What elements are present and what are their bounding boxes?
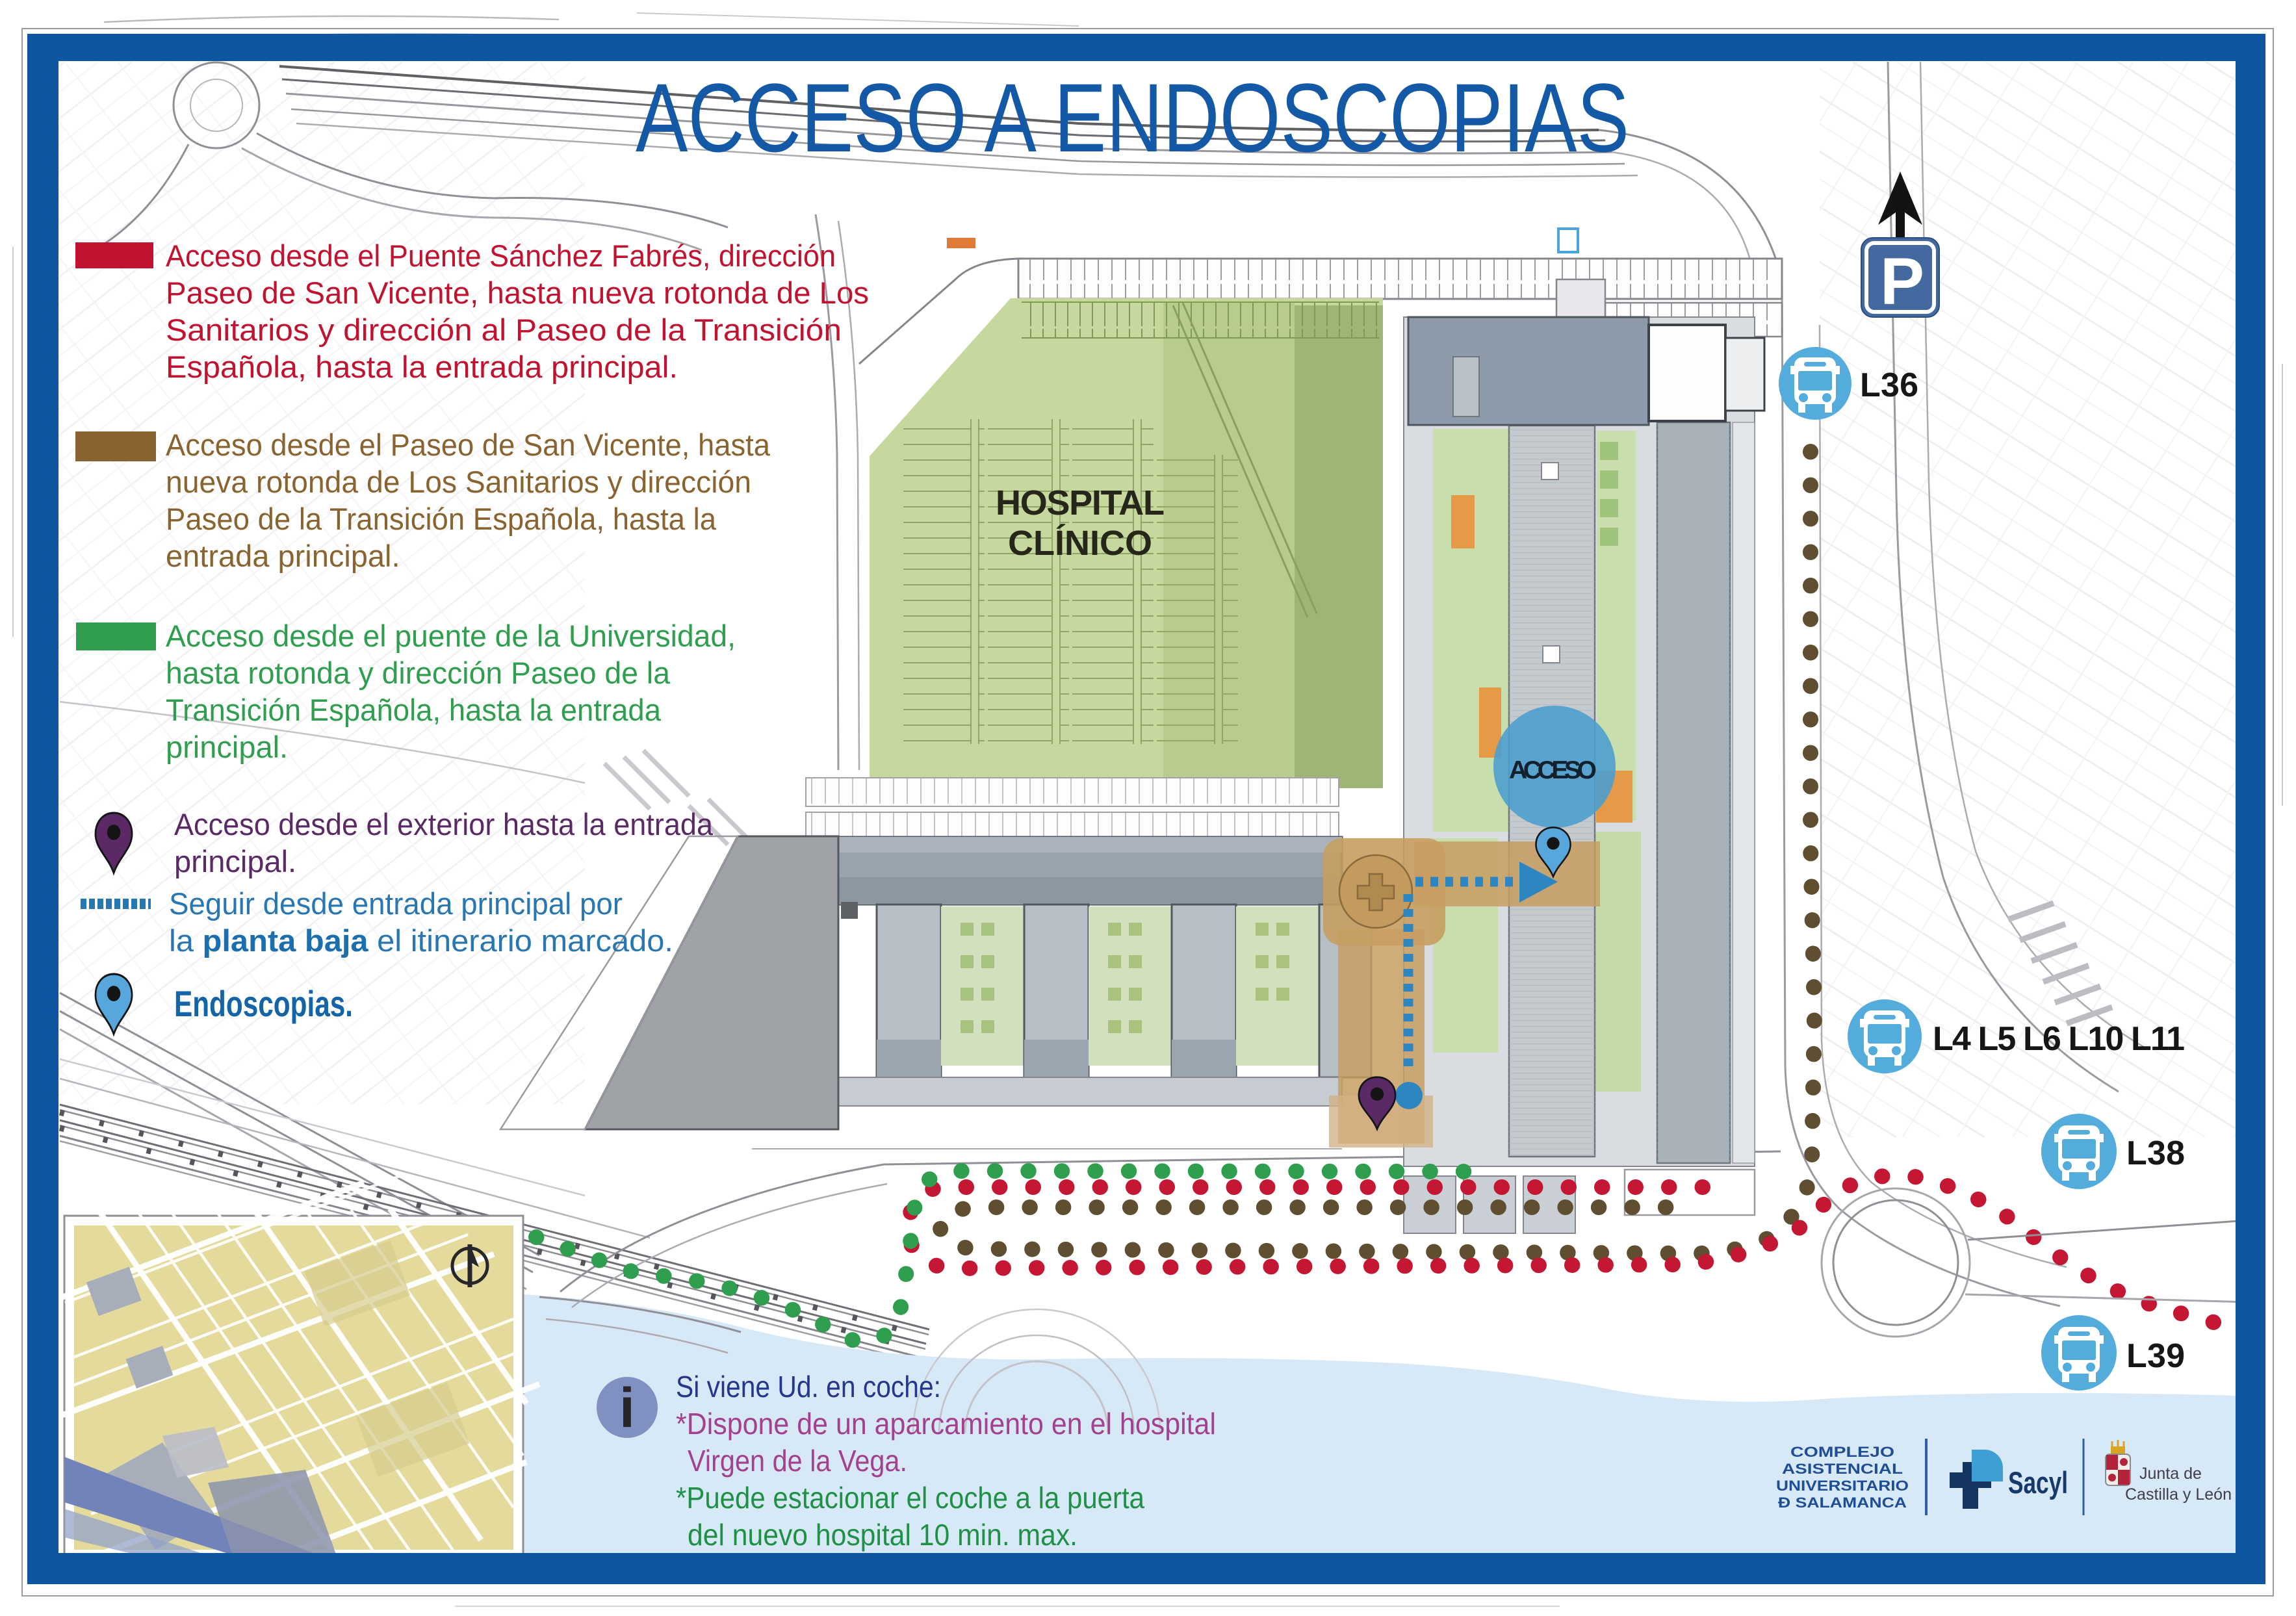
svg-text:Acceso desde el exterior hasta: Acceso desde el exterior hasta la entrad… bbox=[174, 807, 714, 841]
svg-text:hasta rotonda y dirección Pase: hasta rotonda y dirección Paseo de la bbox=[166, 656, 671, 690]
svg-text:ACCESO A ENDOSCOPIAS: ACCESO A ENDOSCOPIAS bbox=[636, 63, 1629, 172]
svg-text:principal.: principal. bbox=[166, 730, 288, 764]
svg-text:Đ SALAMANCA: Đ SALAMANCA bbox=[1778, 1494, 1907, 1511]
svg-text:ACCESO: ACCESO bbox=[1509, 756, 1597, 784]
svg-text:entrada principal.: entrada principal. bbox=[166, 539, 400, 573]
svg-text:Acceso desde el Paseo de San V: Acceso desde el Paseo de San Vicente, ha… bbox=[166, 428, 771, 462]
svg-text:HOSPITAL: HOSPITAL bbox=[996, 483, 1166, 522]
svg-text:L4 L5 L6 L10 L11: L4 L5 L6 L10 L11 bbox=[1933, 1020, 2185, 1058]
svg-text:Virgen de la Vega.: Virgen de la Vega. bbox=[688, 1444, 907, 1478]
svg-text:nueva rotonda de Los Sanitario: nueva rotonda de Los Sanitarios y direcc… bbox=[166, 465, 751, 499]
svg-text:Acceso desde el puente de la U: Acceso desde el puente de la Universidad… bbox=[166, 619, 736, 653]
svg-text:UNIVERSITARIO: UNIVERSITARIO bbox=[1776, 1478, 1909, 1494]
svg-text:ASISTENCIAL: ASISTENCIAL bbox=[1782, 1461, 1903, 1477]
svg-text:Transición Española, hasta la: Transición Española, hasta la entrada bbox=[166, 693, 662, 727]
svg-text:P: P bbox=[1880, 244, 1924, 318]
svg-text:Paseo de San Vicente, hasta nu: Paseo de San Vicente, hasta nueva rotond… bbox=[166, 276, 869, 310]
svg-text:Seguir desde entrada principal: Seguir desde entrada principal por bbox=[169, 886, 623, 921]
svg-text:Si viene Ud. en coche:: Si viene Ud. en coche: bbox=[676, 1370, 941, 1404]
svg-text:Sacyl: Sacyl bbox=[2008, 1465, 2068, 1500]
svg-text:Castilla y León: Castilla y León bbox=[2125, 1485, 2232, 1504]
svg-text:Sanitarios y dirección al Pase: Sanitarios y dirección al Paseo de la Tr… bbox=[166, 313, 842, 347]
svg-text:*Dispone de un aparcamiento en: *Dispone de un aparcamiento en el hospit… bbox=[676, 1407, 1216, 1441]
svg-text:COMPLEJO: COMPLEJO bbox=[1790, 1444, 1894, 1460]
svg-text:Junta de: Junta de bbox=[2139, 1465, 2202, 1483]
svg-text:del nuevo hospital 10 min. max: del nuevo hospital 10 min. max. bbox=[688, 1518, 1077, 1552]
svg-text:L36: L36 bbox=[1860, 366, 1918, 404]
svg-text:*Puede estacionar el coche a l: *Puede estacionar el coche a la puerta bbox=[676, 1481, 1144, 1515]
svg-text:Española, hasta la entrada pri: Española, hasta la entrada principal. bbox=[166, 350, 678, 384]
svg-text:la planta baja el itinerario m: la planta baja el itinerario marcado. bbox=[169, 923, 673, 958]
svg-text:Paseo de la Transición Español: Paseo de la Transición Española, hasta l… bbox=[166, 502, 717, 536]
svg-text:Endoscopias.: Endoscopias. bbox=[174, 983, 353, 1024]
svg-text:i: i bbox=[619, 1377, 635, 1439]
svg-text:Acceso desde el Puente Sánchez: Acceso desde el Puente Sánchez Fabrés, d… bbox=[166, 238, 836, 273]
svg-text:principal.: principal. bbox=[174, 844, 296, 879]
svg-text:CLÍNICO: CLÍNICO bbox=[1008, 524, 1154, 563]
svg-text:L38: L38 bbox=[2126, 1135, 2185, 1172]
svg-text:L39: L39 bbox=[2126, 1337, 2185, 1375]
